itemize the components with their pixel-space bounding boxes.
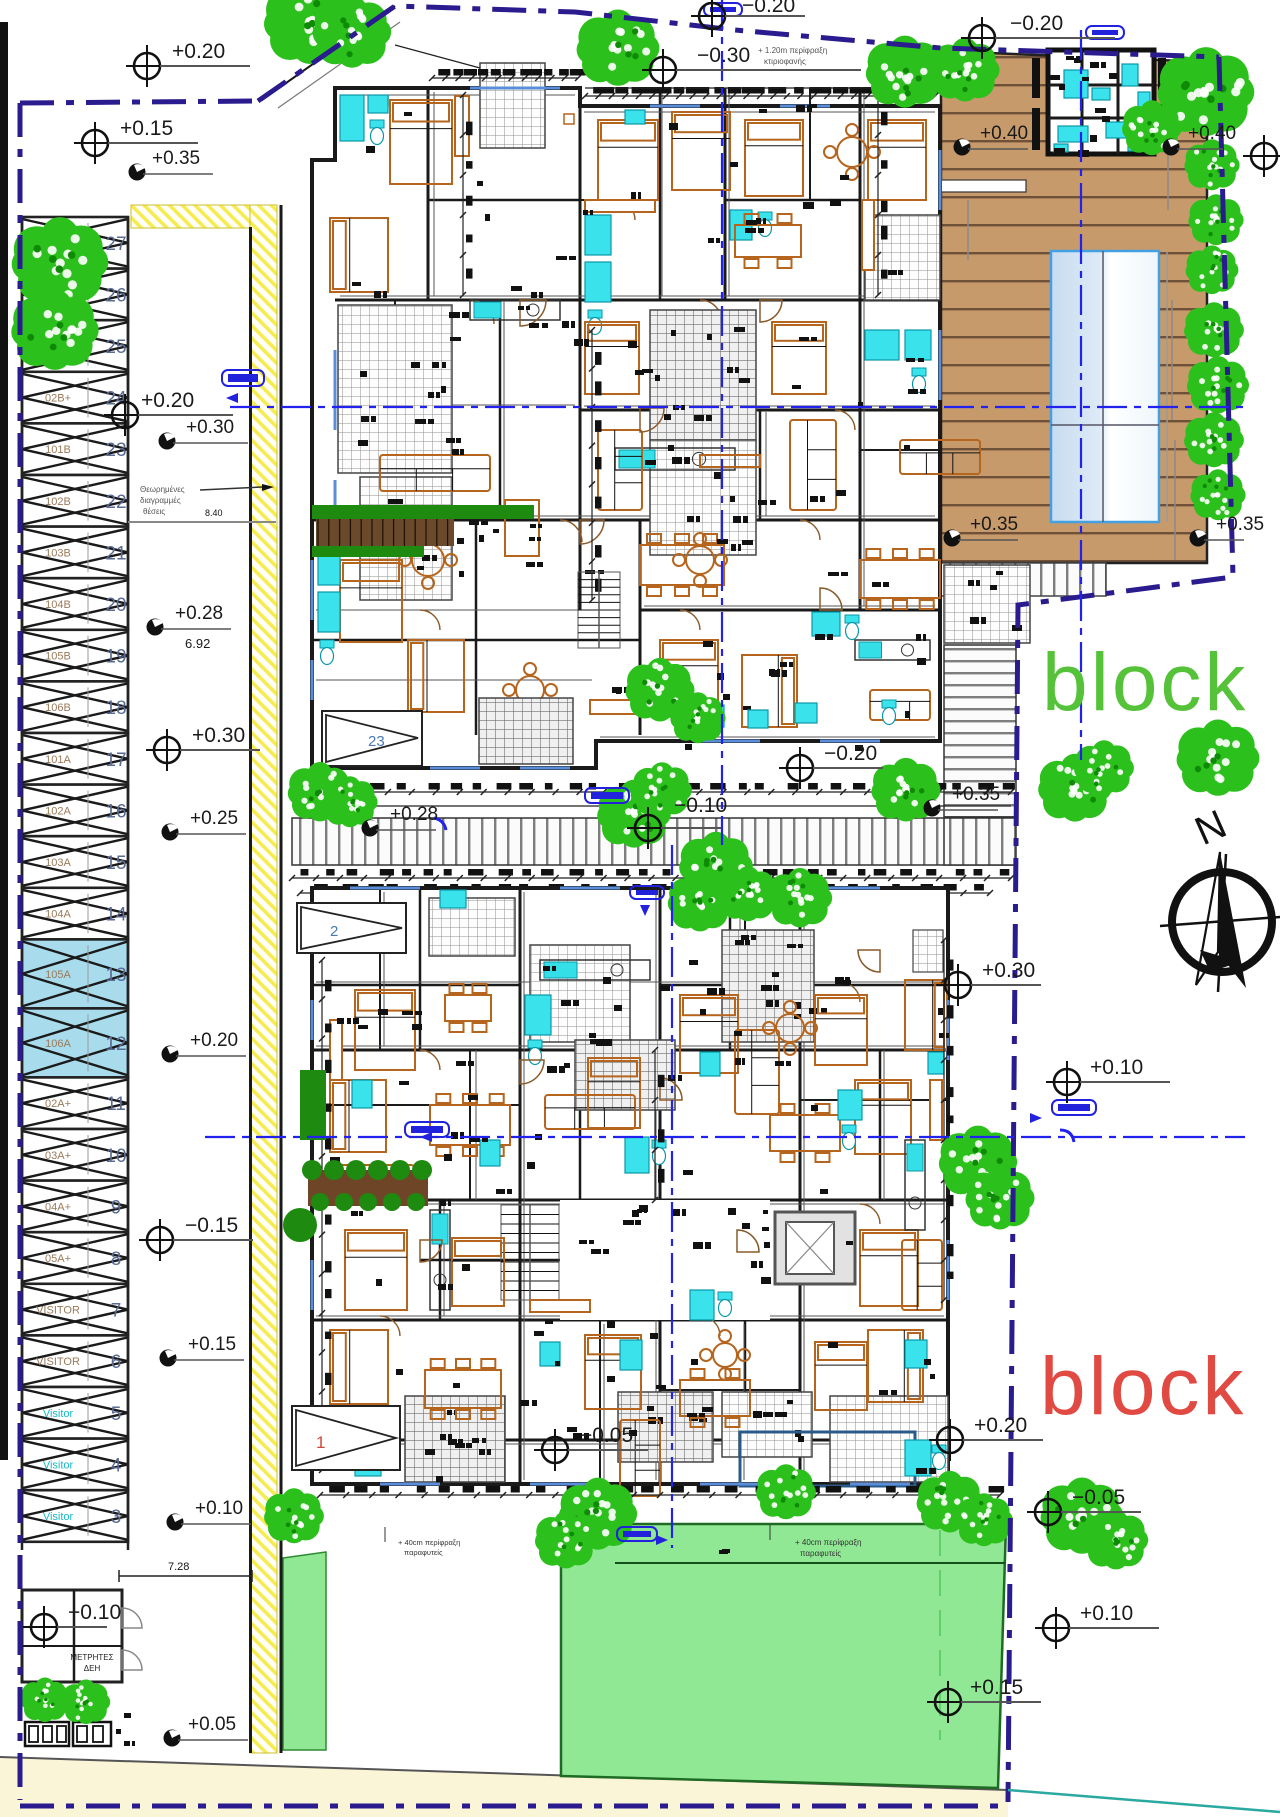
svg-text:22: 22: [105, 492, 126, 513]
svg-text:διαγραμμές: διαγραμμές: [140, 496, 181, 505]
svg-text:+ 40cm περίφραξη: + 40cm περίφραξη: [398, 1538, 460, 1547]
svg-text:102A: 102A: [45, 805, 71, 817]
svg-text:106A: 106A: [45, 1038, 71, 1050]
svg-text:16: 16: [105, 801, 126, 822]
svg-text:−0.20: −0.20: [824, 742, 877, 765]
svg-text:25: 25: [105, 337, 126, 358]
svg-text:+0.28: +0.28: [390, 804, 438, 825]
svg-text:Visitor: Visitor: [43, 1408, 74, 1420]
svg-text:+0.25: +0.25: [190, 808, 238, 829]
svg-text:102B: 102B: [45, 496, 71, 508]
svg-text:1: 1: [316, 1433, 325, 1452]
svg-text:23: 23: [368, 733, 385, 750]
svg-text:7.28: 7.28: [168, 1561, 189, 1573]
svg-text:+0.20: +0.20: [190, 1030, 238, 1051]
svg-text:02B+: 02B+: [45, 393, 71, 405]
svg-text:105A: 105A: [45, 969, 71, 981]
svg-text:+0.30: +0.30: [982, 959, 1035, 982]
svg-text:103B: 103B: [45, 547, 71, 559]
svg-text:VISITOR: VISITOR: [36, 1356, 80, 1368]
svg-text:+0.35: +0.35: [952, 784, 1000, 805]
svg-text:6: 6: [111, 1352, 122, 1373]
svg-text:+0.40: +0.40: [980, 123, 1028, 144]
svg-text:+ 1.20m περίφραξη: + 1.20m περίφραξη: [758, 46, 827, 55]
svg-text:03A+: 03A+: [45, 1150, 71, 1162]
svg-text:Visitor: Visitor: [43, 1511, 74, 1523]
svg-text:15: 15: [105, 853, 126, 874]
svg-text:18: 18: [105, 698, 126, 719]
svg-text:8: 8: [111, 1249, 122, 1270]
svg-text:27: 27: [105, 234, 126, 255]
svg-text:θέσεις: θέσεις: [143, 507, 165, 516]
svg-text:+0.15: +0.15: [188, 1334, 236, 1355]
svg-text:11: 11: [106, 1094, 126, 1115]
svg-text:12: 12: [105, 1034, 126, 1055]
svg-text:2: 2: [330, 923, 338, 940]
svg-text:101B: 101B: [45, 444, 71, 456]
svg-text:+0.05: +0.05: [188, 1714, 236, 1735]
svg-text:05A+: 05A+: [45, 1253, 71, 1265]
svg-text:+0.20: +0.20: [172, 40, 225, 63]
svg-text:14: 14: [105, 905, 127, 926]
svg-text:+0.28: +0.28: [175, 603, 223, 624]
svg-text:−0.05: −0.05: [1072, 1486, 1125, 1509]
svg-text:6.92: 6.92: [185, 636, 210, 651]
svg-text:block: block: [1040, 1341, 1246, 1432]
svg-text:+0.15: +0.15: [120, 117, 173, 140]
svg-text:−0.15: −0.15: [185, 1214, 238, 1237]
svg-text:104A: 104A: [45, 909, 71, 921]
svg-text:3: 3: [111, 1507, 122, 1528]
svg-text:+0.35: +0.35: [970, 514, 1018, 535]
svg-text:20: 20: [105, 595, 126, 616]
svg-text:+0.40: +0.40: [1188, 123, 1236, 144]
svg-text:Θεωρημένες: Θεωρημένες: [140, 485, 185, 494]
svg-text:+0.20: +0.20: [974, 1414, 1027, 1437]
svg-text:ΔΕΗ: ΔΕΗ: [84, 1664, 101, 1673]
svg-text:ΜΕΤΡΗΤΕΣ: ΜΕΤΡΗΤΕΣ: [70, 1653, 113, 1662]
svg-text:103A: 103A: [45, 857, 71, 869]
svg-text:+0.30: +0.30: [186, 417, 234, 438]
svg-text:+0.10: +0.10: [1080, 1602, 1133, 1625]
svg-text:παραφυτείς: παραφυτείς: [800, 1549, 841, 1558]
svg-text:19: 19: [105, 647, 126, 668]
svg-text:−0.05: −0.05: [580, 1424, 633, 1447]
svg-text:−0.20: −0.20: [742, 0, 795, 17]
svg-text:17: 17: [105, 750, 126, 771]
svg-text:VISITOR: VISITOR: [36, 1305, 80, 1317]
svg-text:04A+: 04A+: [45, 1201, 71, 1213]
svg-text:10: 10: [105, 1146, 126, 1167]
svg-text:8.40: 8.40: [205, 508, 223, 518]
svg-text:26: 26: [105, 285, 126, 306]
svg-text:+0.10: +0.10: [195, 1498, 243, 1519]
svg-text:block: block: [1042, 637, 1248, 728]
svg-text:−0.30: −0.30: [697, 44, 750, 67]
svg-text:9: 9: [111, 1197, 122, 1218]
svg-text:−0.10: −0.10: [674, 794, 727, 817]
svg-text:7: 7: [111, 1301, 122, 1322]
svg-text:+0.20: +0.20: [141, 389, 194, 412]
svg-text:+0.10: +0.10: [1090, 1056, 1143, 1079]
svg-text:+ 40cm περίφραξη: + 40cm περίφραξη: [795, 1538, 862, 1547]
svg-text:+0.30: +0.30: [192, 724, 245, 747]
svg-text:101A: 101A: [45, 754, 71, 766]
svg-text:5: 5: [111, 1404, 122, 1425]
svg-text:Visitor: Visitor: [43, 1459, 74, 1471]
svg-text:106B: 106B: [45, 702, 71, 714]
svg-text:−0.10: −0.10: [68, 1601, 121, 1624]
svg-text:−0.20: −0.20: [1010, 12, 1063, 35]
svg-text:+0.35: +0.35: [152, 148, 200, 169]
svg-text:104B: 104B: [45, 599, 71, 611]
svg-text:21: 21: [105, 543, 126, 564]
svg-text:105B: 105B: [45, 651, 71, 663]
svg-text:02A+: 02A+: [45, 1098, 71, 1110]
svg-text:παραφυτείς: παραφυτείς: [404, 1548, 443, 1557]
svg-text:+0.35: +0.35: [1216, 514, 1264, 535]
svg-text:13: 13: [105, 965, 126, 986]
svg-text:4: 4: [111, 1455, 122, 1476]
svg-text:κτιριοφανής: κτιριοφανής: [764, 57, 806, 66]
svg-text:+0.15: +0.15: [970, 1676, 1023, 1699]
svg-text:23: 23: [105, 440, 126, 461]
